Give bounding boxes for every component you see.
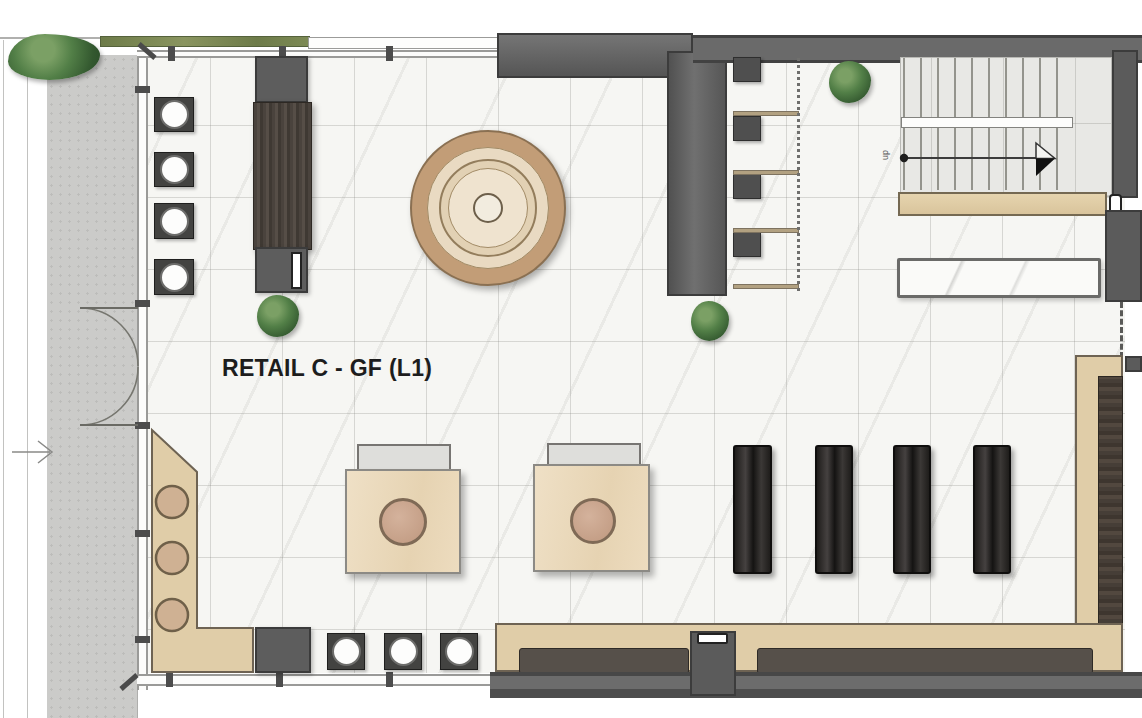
display-bench [733, 445, 772, 574]
storefront-glazing-top [308, 37, 499, 49]
hanging-rail [733, 111, 799, 116]
hanging-rail [733, 228, 799, 233]
planter-pot [389, 637, 418, 666]
storefront-wall-top [137, 50, 497, 58]
wall-stub-right [1125, 356, 1142, 372]
stairs-direction-label: up [880, 150, 890, 160]
shelf-unit [519, 648, 689, 674]
planter-pot [160, 100, 189, 129]
stair-treads-upper [903, 58, 1073, 118]
display-bench [815, 445, 853, 574]
hanging-rail [733, 170, 799, 175]
planter [440, 633, 478, 670]
property-line [3, 40, 4, 718]
rail-bracket [733, 57, 761, 82]
stair-landing-band [901, 117, 1073, 128]
planter [154, 97, 194, 132]
shelf-unit [757, 648, 1093, 674]
cabinet-block [255, 627, 311, 673]
property-line [27, 40, 28, 718]
marble-counter [897, 258, 1101, 298]
mullion [276, 672, 283, 687]
storefront-wall-left [137, 50, 148, 690]
planter-pot [160, 155, 189, 184]
wall-block-right [1105, 210, 1142, 302]
planter [154, 203, 194, 239]
circular-display-feature [410, 130, 566, 286]
storefront-wall-bottom [137, 674, 495, 686]
display-bench [973, 445, 1011, 574]
mullion [135, 636, 150, 643]
pillar-niche [697, 633, 728, 644]
mullion [135, 86, 150, 93]
planter-pot [160, 207, 189, 236]
rail-bracket [733, 232, 761, 257]
table-bench [357, 444, 451, 471]
planter-pot [160, 263, 189, 292]
table-display-circle [379, 498, 427, 546]
display-center [473, 193, 503, 223]
planter-pot [445, 637, 474, 666]
wall-vertical [667, 51, 727, 296]
entry-arrow-icon [12, 441, 52, 463]
cabinet-door [291, 252, 302, 289]
wall-top-horizontal [497, 33, 693, 78]
rail-bracket [733, 116, 761, 141]
mullion [135, 422, 150, 429]
mullion [135, 530, 150, 537]
counter-cabinet [255, 56, 308, 103]
mullion [166, 672, 173, 687]
hanging-rail [733, 284, 799, 289]
stair-side-wall [1112, 50, 1138, 198]
wood-counter [253, 102, 312, 250]
mullion [168, 46, 175, 61]
display-zone-dotted-line [797, 58, 800, 291]
mullion [386, 672, 393, 687]
opening-dashed-line [1120, 302, 1123, 358]
table-display-circle [570, 498, 616, 544]
wall-bottom [490, 672, 1142, 698]
mullion [386, 46, 393, 61]
rail-bracket [733, 174, 761, 199]
sidewalk-pavement [47, 55, 138, 718]
planter [384, 633, 422, 670]
planter [154, 152, 194, 187]
floor-plan: up [0, 0, 1142, 718]
wood-bench-strip [898, 192, 1107, 216]
display-bench [893, 445, 931, 574]
room-label: RETAIL C - GF (L1) [222, 355, 432, 382]
planter [327, 633, 365, 670]
mullion [135, 300, 150, 307]
planter [154, 259, 194, 295]
stair-treads-lower [903, 128, 1073, 190]
planter-pot [332, 637, 361, 666]
